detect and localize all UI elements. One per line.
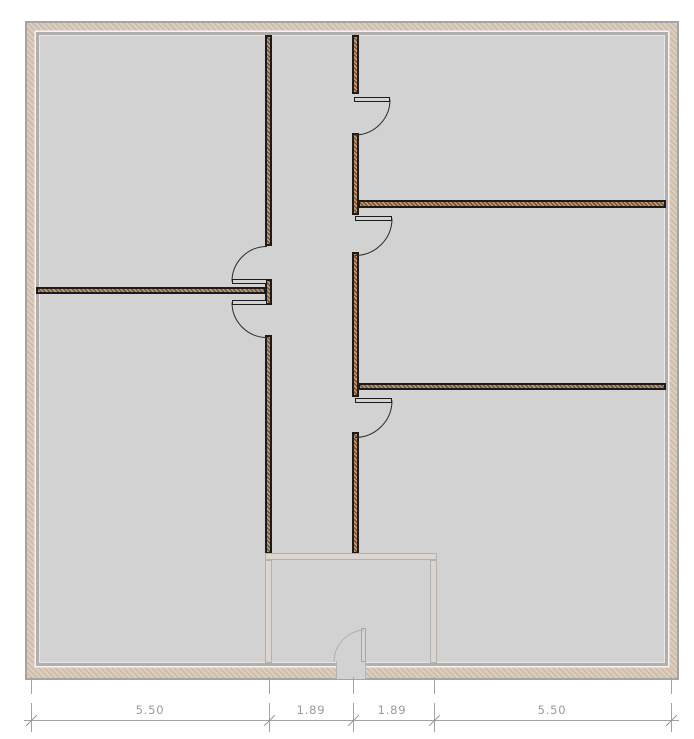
dimension-label: 5.50 [524, 704, 580, 717]
door-leaf-right-middle[interactable] [355, 216, 392, 221]
dimension-label: 1.89 [283, 704, 339, 717]
interior-wall-right-seg1[interactable] [352, 35, 359, 94]
interior-wall-left-lower[interactable] [265, 335, 272, 554]
dimension-extension-stub [31, 677, 32, 694]
dimension-label: 1.89 [364, 704, 420, 717]
vestibule-wall-left[interactable] [265, 560, 272, 663]
vestibule-wall-right[interactable] [430, 560, 437, 663]
dimension-label: 5.50 [122, 704, 178, 717]
dimension-extension-stub [671, 677, 672, 694]
interior-wall-right-horizontal-1[interactable] [358, 200, 666, 208]
vestibule-door-leaf[interactable] [361, 628, 366, 662]
door-leaf-right-bottom[interactable] [355, 398, 392, 403]
door-leaf-left-upper[interactable] [232, 279, 267, 284]
interior-wall-right-seg4[interactable] [352, 432, 359, 554]
interior-wall-right-horizontal-2[interactable] [358, 383, 666, 390]
interior-wall-left-upper[interactable] [265, 35, 272, 246]
dimension-extension-stub [269, 677, 270, 694]
floor-plan-canvas: 5.50 1.89 1.89 5.50 [0, 0, 694, 739]
door-leaf-right-top[interactable] [354, 97, 390, 102]
dimension-extension-stub [434, 677, 435, 694]
door-leaf-left-lower[interactable] [232, 300, 267, 305]
vestibule-wall-top[interactable] [265, 553, 437, 560]
interior-wall-right-seg3[interactable] [352, 252, 359, 397]
dimension-extension-stub [353, 677, 354, 694]
interior-wall-left-horizontal[interactable] [36, 287, 266, 294]
vestibule-door-opening [336, 661, 366, 679]
